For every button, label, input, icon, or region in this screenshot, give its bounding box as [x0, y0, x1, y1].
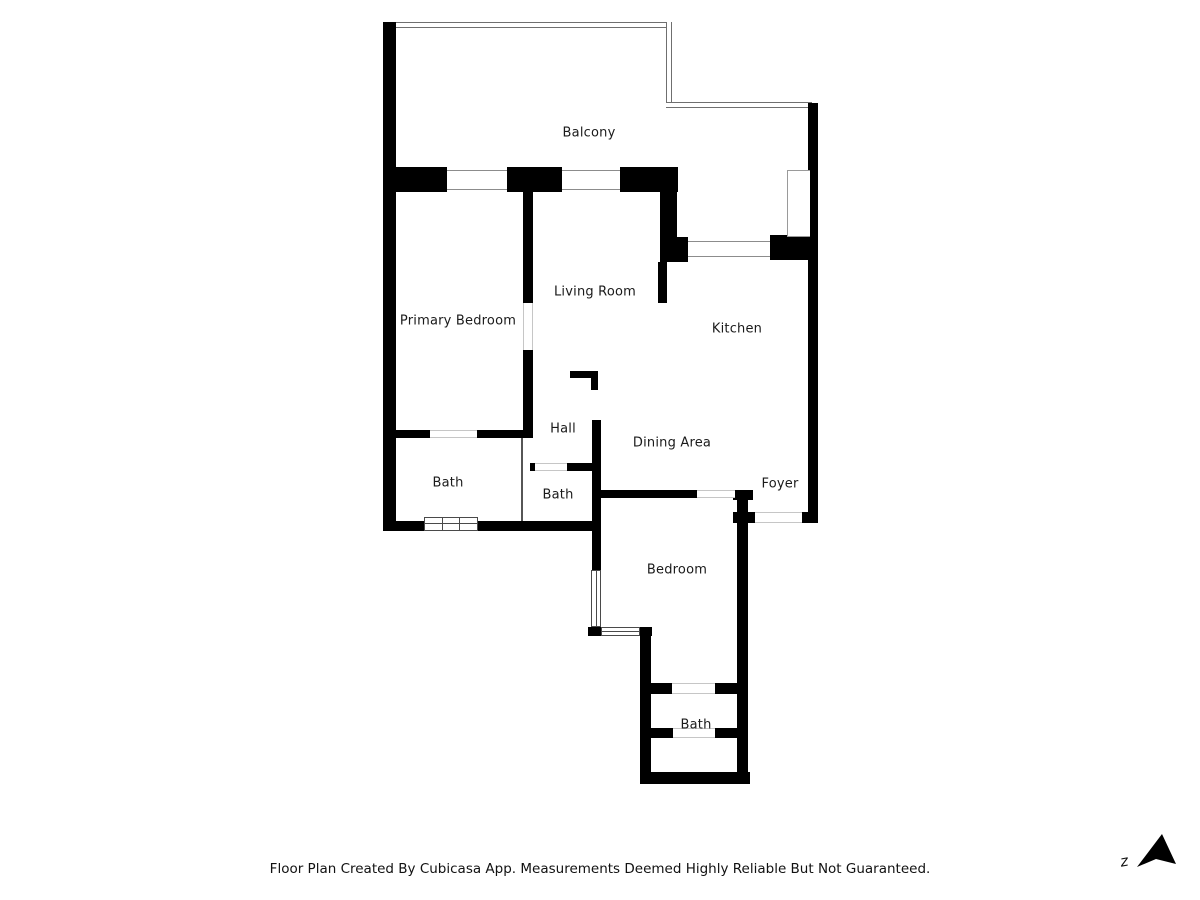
window — [447, 170, 507, 190]
balcony-railing — [666, 102, 812, 108]
window — [601, 627, 640, 636]
wall-segment — [808, 103, 818, 523]
room-label-hall: Hall — [550, 422, 576, 437]
wall-segment — [588, 627, 601, 636]
balcony-door — [787, 170, 810, 237]
wall-segment — [383, 22, 396, 531]
balcony-railing — [666, 22, 672, 108]
room-label-living-room: Living Room — [554, 285, 636, 300]
wall-segment — [567, 463, 593, 471]
door-opening — [430, 430, 477, 438]
entry-door-opening — [755, 512, 802, 523]
floor-plan: Balcony Primary Bedroom Living Room Kitc… — [0, 0, 1200, 900]
wall-segment — [715, 728, 738, 738]
room-label-foyer: Foyer — [761, 477, 798, 492]
wall-segment — [477, 430, 533, 438]
window — [424, 517, 478, 531]
window — [562, 170, 620, 190]
wall-segment — [597, 490, 697, 498]
room-label-primary-bedroom: Primary Bedroom — [400, 314, 516, 329]
door-opening — [523, 303, 533, 350]
pocket-door-line — [521, 438, 523, 521]
window — [688, 241, 770, 257]
wall-segment — [640, 635, 651, 784]
footer-disclaimer: Floor Plan Created By Cubicasa App. Meas… — [270, 861, 931, 877]
room-label-kitchen: Kitchen — [712, 322, 762, 337]
wall-segment — [383, 430, 430, 438]
wall-segment — [523, 350, 533, 438]
room-label-balcony: Balcony — [563, 126, 616, 141]
wall-segment — [651, 683, 672, 694]
room-label-bath-primary: Bath — [432, 476, 463, 491]
north-arrow-icon: z — [1105, 820, 1185, 880]
wall-segment — [477, 521, 601, 531]
wall-segment — [658, 262, 667, 303]
room-label-bath-lower: Bath — [680, 718, 711, 733]
window — [591, 570, 601, 627]
wall-segment — [737, 490, 748, 784]
wall-segment — [640, 772, 750, 784]
wall-segment — [660, 190, 677, 237]
balcony-railing — [388, 22, 672, 28]
wall-segment — [523, 190, 533, 303]
wall-segment — [591, 371, 598, 390]
door-opening — [535, 463, 567, 471]
wall-segment — [383, 521, 425, 531]
door-opening — [697, 490, 735, 498]
wall-segment — [620, 167, 678, 192]
wall-segment — [383, 167, 447, 192]
room-label-bedroom: Bedroom — [647, 563, 707, 578]
wall-segment — [507, 167, 562, 192]
wall-segment — [651, 728, 673, 738]
wall-segment — [715, 683, 737, 694]
wall-segment — [802, 512, 818, 523]
room-label-dining-area: Dining Area — [633, 436, 711, 451]
door-opening — [672, 683, 715, 694]
north-arrow-label: z — [1118, 851, 1131, 870]
room-label-bath-hall: Bath — [542, 488, 573, 503]
wall-segment — [660, 237, 688, 262]
